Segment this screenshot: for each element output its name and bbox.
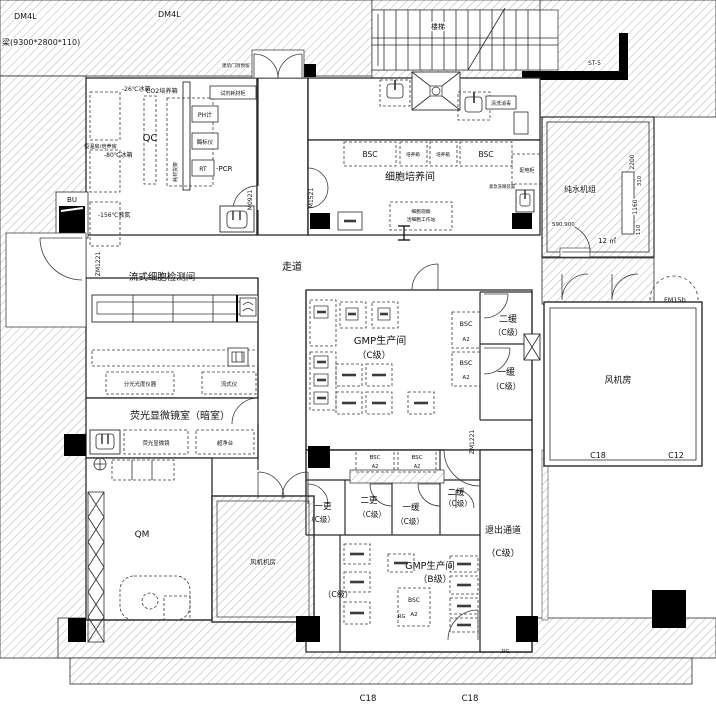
eyewash-label: 紧急洗眼装置 (489, 183, 516, 190)
reader-label: 酶标仪 (197, 138, 214, 146)
dim-590: 590,900 (552, 222, 575, 228)
buffer1-b-1: 一缓 (402, 502, 420, 513)
pure-water-label: 纯水机组 (564, 184, 596, 194)
reagent-label: 试剂耗材柜 (220, 90, 245, 97)
room-cell-culture-label: 细胞培养间 (385, 170, 435, 183)
wash-label: 清洗消毒 (491, 100, 511, 107)
workstation-label-1: 细胞观察 (411, 208, 430, 215)
gmp-b-label-2: （B级） (418, 573, 451, 585)
rt-label: RT (199, 166, 207, 173)
change1-1: 一更 (314, 502, 332, 512)
workstation-label-2: 活细胞工作站 (407, 216, 436, 223)
door-reserve-note: 建筑门洞预留 (222, 62, 250, 69)
exit-label-1: 退出通道 (485, 524, 521, 536)
gmp-b-label-1: GMP生产间 (405, 560, 455, 572)
buffer1-b-2: （C级） (396, 516, 424, 526)
room-fan-small-label: 风机机房 (250, 557, 276, 566)
dim-1160: 1160 (632, 199, 639, 214)
room-flow-label: 流式细胞检测间 (129, 271, 196, 283)
dm4l-a-label: DM4L (14, 12, 37, 21)
stairs-label: 楼梯 (431, 22, 445, 31)
pcr-label: -PCR (216, 165, 233, 173)
buffer1-c-2: （C级） (491, 381, 521, 391)
co2-label: CO2培养箱 (146, 87, 178, 95)
room-qm-label: QM (135, 530, 150, 540)
beam-note: 梁(9300*2800*110) (2, 38, 80, 47)
door-fm15b-label: FM15b (664, 296, 686, 304)
grid-c18-a: C18 (360, 694, 377, 704)
entry-strip (257, 78, 308, 235)
fluor-micro-label: 荧光显微镜 (143, 439, 171, 447)
fan-room-label: 风机房 (604, 374, 631, 386)
shelf-label: 耗材货架 (172, 162, 179, 182)
door-zm1221-mid: ZM1221 (469, 430, 476, 455)
dm4l-b-label: DM4L (158, 10, 181, 19)
fluor-sink (90, 430, 120, 454)
structure-bar-v (619, 33, 628, 80)
pass-through (524, 334, 540, 360)
bsc-m1-a2: A2 (372, 464, 379, 470)
corridor-label: 走道 (282, 260, 302, 273)
bsc-m1-label: BSC (369, 455, 380, 461)
change1-2: （C级） (307, 514, 335, 524)
flow-cyto-label: 流式仪 (221, 380, 238, 388)
door-m1521-label: M1521 (308, 188, 315, 209)
bsc-label-1: BSC (362, 150, 377, 159)
change2-2: （C级） (358, 509, 386, 519)
door-zm1221-left: ZM1221 (95, 252, 102, 277)
st5-label: ST-5 (588, 60, 601, 67)
change2-1: 二更 (360, 496, 378, 506)
gmp-c-label-2: （C级） (357, 349, 390, 361)
left-entry (6, 233, 86, 327)
bsc-c1-label: BSC (459, 320, 472, 328)
bu-label: BU (67, 196, 77, 204)
room-fluorescence-label: 荧光显微镜室（暗室） (130, 409, 230, 422)
bsc-b-a2: A2 (410, 612, 417, 618)
buffer2-c-1: 二缓 (499, 313, 517, 325)
incubator-room-label: 恒温房/培养房 (84, 142, 117, 150)
buffer2-b-2: （C级） (444, 498, 472, 508)
bsc-label-2: BSC (478, 150, 493, 159)
floor-plan-drawing: BU (0, 0, 716, 713)
grid-c18-fan: C18 (590, 451, 606, 460)
eyewash-sink (516, 190, 534, 212)
grid-c12-fan: C12 (668, 451, 684, 460)
dim-2200: 2200 (629, 154, 636, 169)
room-qc-label: QC (143, 133, 158, 144)
bsc-c2-label: BSC (459, 359, 472, 367)
bsc-c1-a2: A2 (462, 337, 469, 343)
buffer2-c-2: （C级） (493, 327, 523, 337)
incubator-label-2: 培养箱 (436, 151, 450, 158)
bsc-c2-a2: A2 (462, 375, 469, 381)
wash-unit (412, 72, 460, 110)
ln156-label: -156℃液氮 (98, 211, 130, 219)
dim-110: 110 (636, 224, 642, 235)
c-corner-label: （C级） (323, 589, 353, 599)
pass-box-top (514, 112, 528, 134)
grid-c18-b: C18 (462, 694, 479, 704)
dim-310: 310 (637, 175, 643, 186)
clean-bench-label: 超净台 (217, 439, 233, 447)
rg-b-label: RG (502, 649, 509, 655)
buffer2-b-1: 二缓 (447, 487, 465, 498)
spectro-label: 分光光度仪器 (124, 380, 157, 388)
power-label: 配电柜 (519, 167, 534, 174)
ph-label: PH计 (198, 111, 212, 119)
exit-label-2: （C级） (486, 547, 519, 559)
incubator-label-1: 培养箱 (406, 151, 420, 158)
buffer1-c-1: 一缓 (497, 366, 515, 378)
rg-a-label: RG (398, 614, 405, 620)
staircase (372, 8, 558, 70)
bsc-m2-label: BSC (411, 455, 422, 461)
bsc-b-label: BSC (408, 597, 420, 604)
bu-panel: BU (56, 192, 88, 238)
bsc-m2-a2: A2 (414, 464, 421, 470)
floor-plan: BU (0, 0, 716, 713)
door-m0921-label: M0921 (247, 190, 254, 211)
dim-area: 12 ㎡ (598, 237, 616, 245)
freezer80-label: -80℃冰箱 (104, 151, 133, 159)
gmp-c-label-1: GMP生产间 (354, 334, 406, 347)
